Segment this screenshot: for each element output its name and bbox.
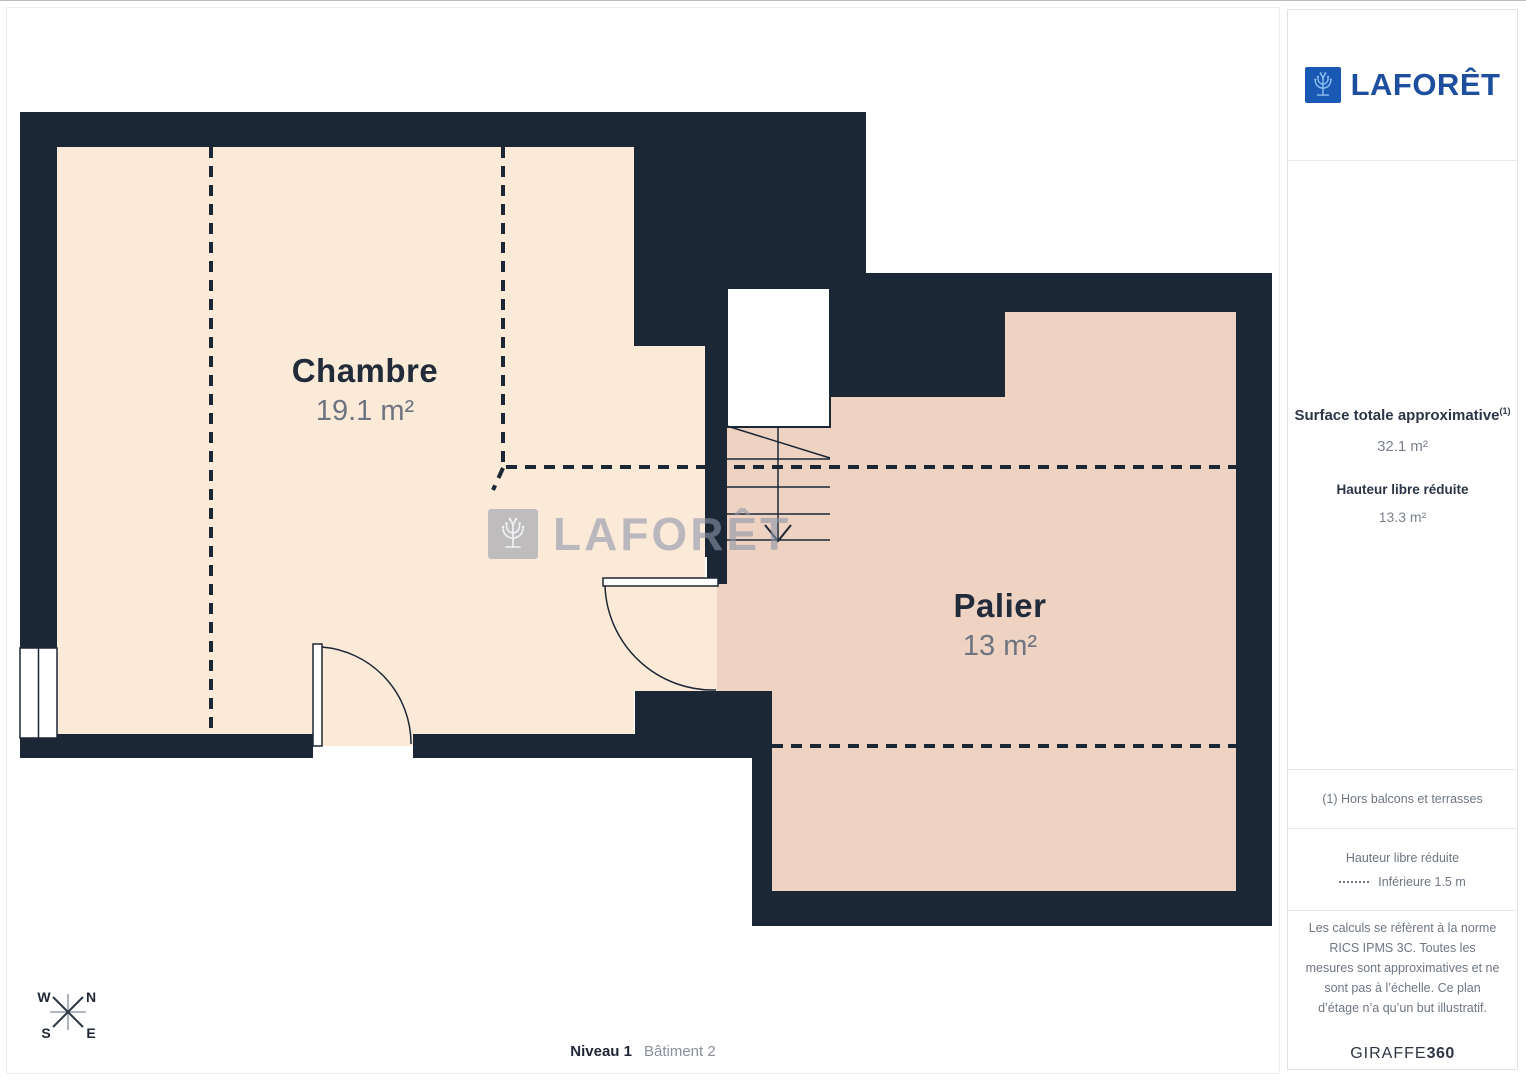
compass-s: S [41,1025,50,1041]
stairwell-void [727,288,830,427]
laforet-logo: LAFORÊT [1288,10,1517,161]
room-area: 19.1 m² [205,395,525,428]
laforet-wordmark: LAFORÊT [1351,67,1501,103]
legend-section: Hauteur libre réduite Inférieure 1.5 m [1288,829,1517,911]
laforet-tree-icon [1305,67,1341,103]
legend-item-label: Inférieure 1.5 m [1378,875,1466,889]
compass-rose: W N S E [37,989,96,1041]
dotted-line-sample [1339,881,1369,883]
compass-w: W [37,989,51,1005]
legend-title: Hauteur libre réduite [1346,851,1459,865]
room-area: 13 m² [840,630,1160,663]
giraffe360-brand-suffix: 360 [1427,1045,1455,1062]
footnote-text: (1) Hors balcons et terrasses [1322,792,1482,806]
disclaimer-text: Les calculs se réfèrent à la norme RICS … [1288,918,1517,1018]
page: W N S E Chambre 19.1 m² Palier 13 m² [0,0,1526,1080]
giraffe360-brand: GIRAFFE360 [1350,1045,1455,1063]
legend-item: Inférieure 1.5 m [1339,875,1466,889]
level-label: Niveau 1 [570,1043,632,1060]
room-label-palier: Palier 13 m² [840,587,1160,663]
compass-n: N [86,989,96,1005]
room-chambre-floor [57,147,717,746]
surface-summary-section: Surface totale approximative(1) 32.1 m² … [1288,161,1517,770]
door-leaf [313,644,322,746]
surface-total-title: Surface totale approximative(1) [1294,406,1510,424]
footnote-section: (1) Hors balcons et terrasses [1288,770,1517,829]
room-name: Palier [840,587,1160,625]
giraffe360-brand-name: GIRAFFE [1350,1045,1426,1062]
surface-total-title-text: Surface totale approximative [1294,407,1499,424]
footnote-ref: (1) [1500,406,1511,416]
room-label-chambre: Chambre 19.1 m² [205,352,525,428]
window [20,648,57,738]
door-leaf [603,578,718,586]
reduced-height-label: Hauteur libre réduite [1336,482,1468,497]
disclaimer-section: Les calculs se réfèrent à la norme RICS … [1288,911,1517,1069]
floor-plan-drawing: W N S E [0,1,1286,1080]
info-sidebar: LAFORÊT Surface totale approximative(1) … [1287,9,1518,1070]
room-name: Chambre [205,352,525,390]
surface-total-value: 32.1 m² [1377,438,1428,455]
compass-e: E [86,1025,95,1041]
level-footer: Niveau 1Bâtiment 2 [0,1043,1286,1060]
building-label: Bâtiment 2 [644,1043,716,1060]
reduced-height-value: 13.3 m² [1379,509,1426,525]
